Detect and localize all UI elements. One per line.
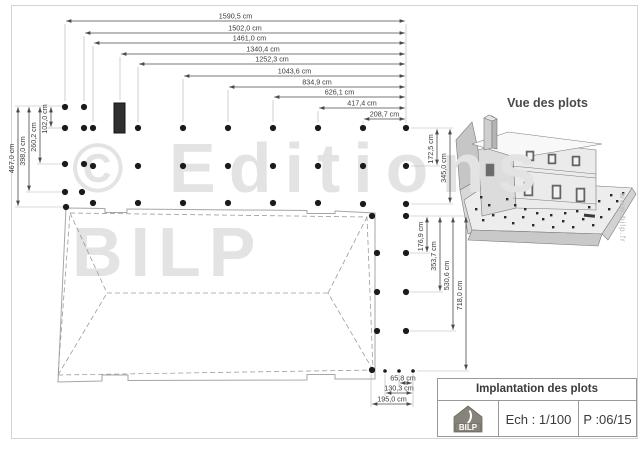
plot-dot bbox=[90, 200, 96, 206]
plot-dot bbox=[62, 125, 68, 131]
dimension-label: 417,4 cm bbox=[347, 99, 377, 108]
dimension-label: 260,2 cm bbox=[29, 122, 38, 152]
plot-dot bbox=[135, 163, 141, 169]
roof-hip-line bbox=[70, 213, 107, 293]
view3d-title: Vue des plots bbox=[455, 96, 640, 110]
roof-hip-line bbox=[328, 293, 373, 370]
dimension-label: 398,0 cm bbox=[18, 136, 27, 166]
plot-dot bbox=[180, 200, 186, 206]
plot-dot bbox=[81, 104, 87, 110]
dimension-label: 208,7 cm bbox=[370, 110, 400, 119]
plot-dot bbox=[360, 163, 366, 169]
scale-label: Ech : 1/100 bbox=[499, 401, 579, 437]
dimension-label: 467,0 cm bbox=[7, 144, 16, 174]
dimension-label: 1590,5 cm bbox=[219, 12, 253, 21]
plot-dot bbox=[63, 204, 69, 210]
dimension-label: 195,0 cm bbox=[377, 395, 407, 404]
bilp-logo-icon: BILP bbox=[453, 405, 483, 434]
dimension-label: 102,0 cm bbox=[40, 104, 49, 134]
plot-dot bbox=[225, 163, 231, 169]
plot-dot bbox=[81, 125, 87, 131]
plot-dot bbox=[62, 189, 68, 195]
roof-dashed-outline bbox=[58, 213, 373, 375]
plot-dot bbox=[403, 125, 409, 131]
roof-hip-line bbox=[328, 217, 367, 293]
roof-hip-line bbox=[58, 293, 107, 375]
dimension-label: 1340,4 cm bbox=[246, 45, 280, 54]
page-number-label: P :06/15 bbox=[579, 401, 636, 437]
chimney-plan bbox=[114, 103, 125, 133]
plot-dot bbox=[79, 189, 85, 195]
plot-dot bbox=[315, 200, 321, 206]
plot-dot bbox=[315, 163, 321, 169]
plot-dot-small bbox=[411, 369, 415, 373]
plot-dot-small bbox=[397, 369, 401, 373]
dimension-label: 1252,3 cm bbox=[255, 55, 289, 64]
plot-dot bbox=[403, 250, 409, 256]
dimension-label: 718,0 cm bbox=[455, 281, 464, 311]
plot-dot bbox=[360, 125, 366, 131]
plot-dot bbox=[180, 125, 186, 131]
plot-dot bbox=[403, 201, 409, 207]
plot-dot bbox=[369, 213, 375, 219]
dimension-label: 1502,0 cm bbox=[228, 24, 262, 33]
building-outline bbox=[58, 208, 375, 382]
plot-dot bbox=[225, 200, 231, 206]
plot-dot bbox=[62, 161, 68, 167]
logo-text: BILP bbox=[459, 423, 478, 432]
plot-dot bbox=[374, 250, 380, 256]
plot-dot bbox=[315, 125, 321, 131]
dimension-label: 345,0 cm bbox=[439, 153, 448, 183]
drawing-title: Implantation des plots bbox=[438, 379, 636, 401]
plot-dot bbox=[270, 200, 276, 206]
plot-dot bbox=[270, 163, 276, 169]
dimension-label: 130,3 cm bbox=[384, 384, 414, 393]
plot-dot bbox=[225, 125, 231, 131]
dimension-label: 1461,0 cm bbox=[233, 34, 267, 43]
plot-dot bbox=[135, 200, 141, 206]
plot-dot bbox=[135, 125, 141, 131]
site-vertical-text: www.bilp.fr bbox=[618, 193, 627, 243]
plot-dot-small bbox=[383, 369, 387, 373]
plot-dot bbox=[90, 163, 96, 169]
plot-dot bbox=[360, 201, 366, 207]
plot-dot bbox=[270, 125, 276, 131]
plot-dot bbox=[403, 213, 409, 219]
dimension-label: 626,1 cm bbox=[325, 88, 355, 97]
dimension-label: 65,8 cm bbox=[390, 374, 416, 383]
plot-dot bbox=[374, 289, 380, 295]
plot-dot bbox=[81, 161, 87, 167]
plot-dot bbox=[403, 328, 409, 334]
dimension-label: 834,9 cm bbox=[302, 78, 332, 87]
dimension-label: 530,6 cm bbox=[442, 261, 451, 291]
plot-dot bbox=[403, 289, 409, 295]
plot-dot bbox=[62, 104, 68, 110]
dimension-label: 172,5 cm bbox=[426, 134, 435, 164]
plot-dot bbox=[374, 328, 380, 334]
plot-dot bbox=[369, 367, 375, 373]
dimension-label: 353,7 cm bbox=[429, 241, 438, 271]
logo-cell: BILP bbox=[438, 401, 499, 437]
dimension-label: 1043,6 cm bbox=[278, 67, 312, 76]
dimension-label: 176,9 cm bbox=[416, 222, 425, 252]
plot-dot bbox=[90, 125, 96, 131]
title-block: Implantation des plots BILP Ech : 1/100 … bbox=[437, 378, 637, 437]
plot-dot bbox=[403, 163, 409, 169]
plot-dot bbox=[180, 163, 186, 169]
title-block-row: BILP Ech : 1/100 P :06/15 bbox=[438, 401, 636, 437]
